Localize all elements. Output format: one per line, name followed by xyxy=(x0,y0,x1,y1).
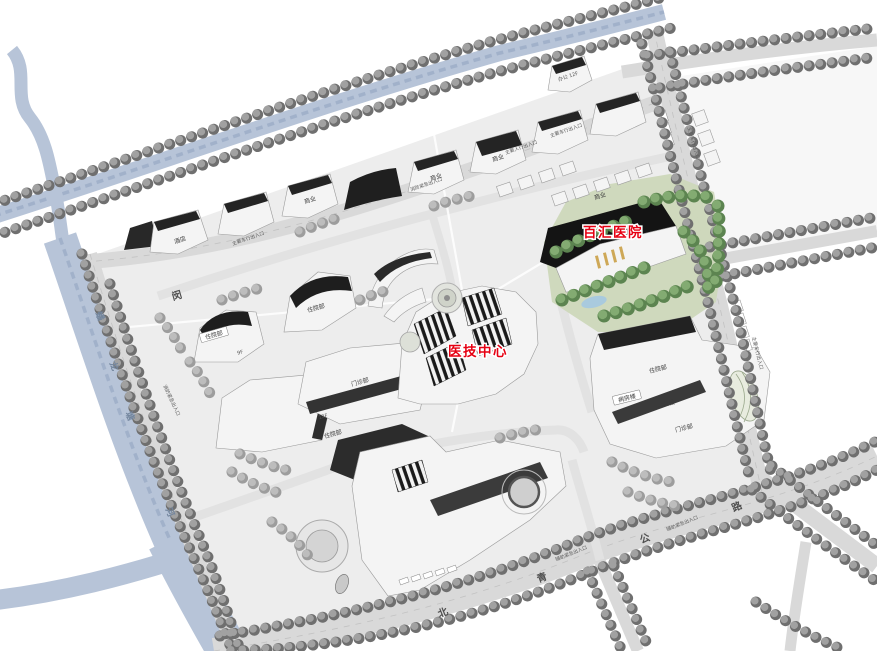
river-branch xyxy=(0,556,186,600)
label-medtech-red: 医技中心 xyxy=(448,343,508,360)
label-hospital-red: 百汇医院 xyxy=(583,224,643,241)
site-plan-canvas: 百汇医院 医技中心 北 青 公 路 闵 蟠 龙 塘 河 酒店 商业 商业 商业 … xyxy=(0,0,877,651)
